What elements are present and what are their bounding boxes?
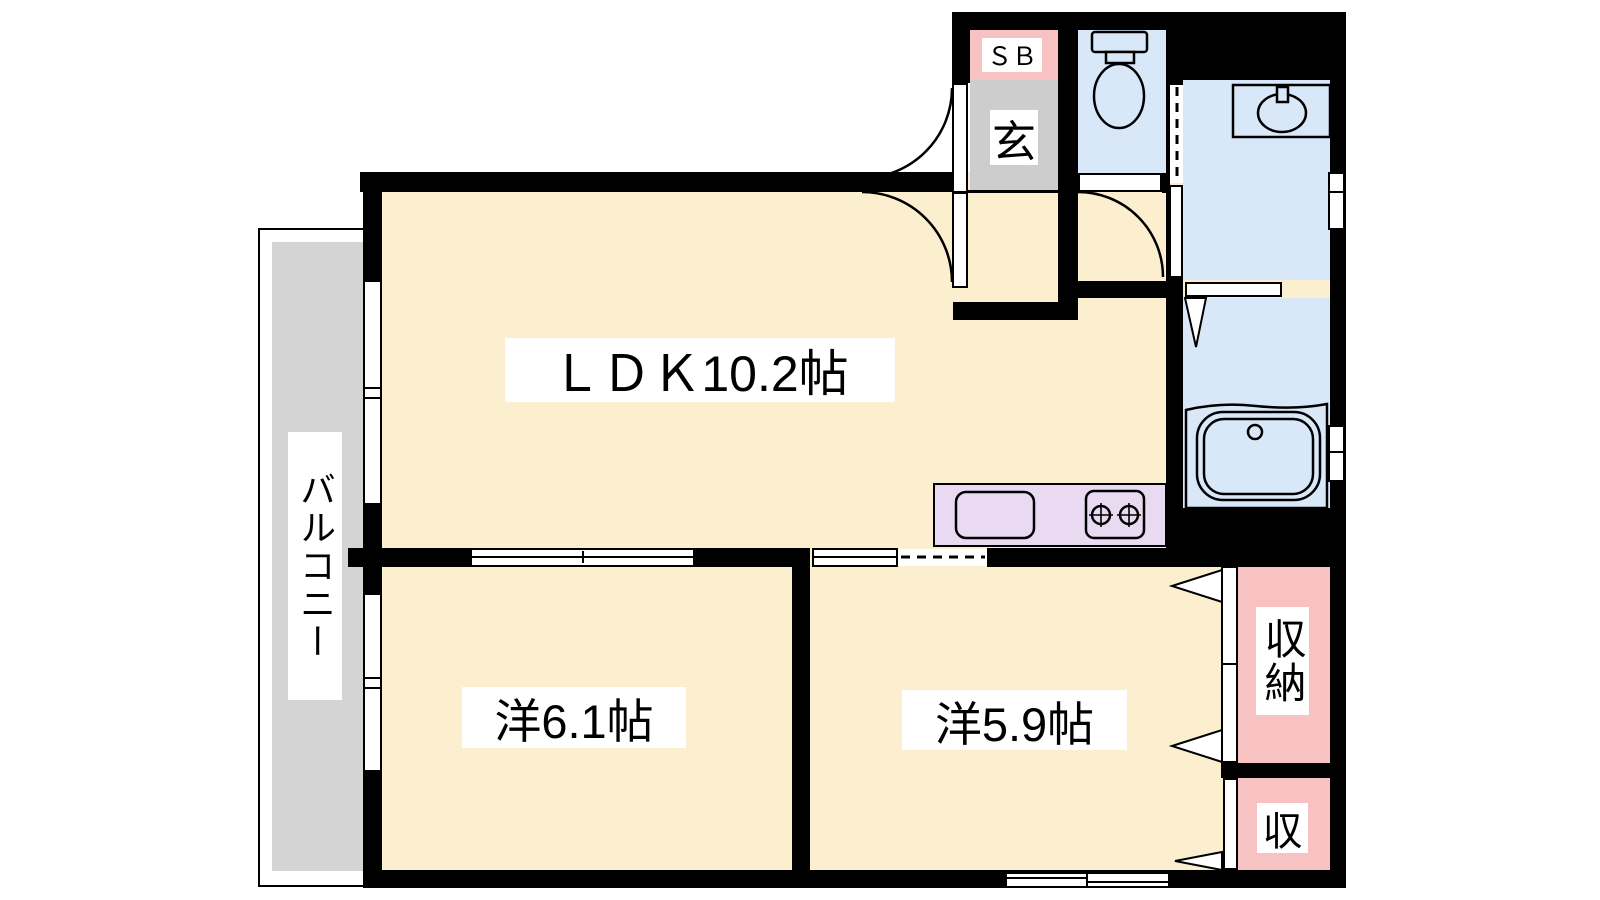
toilet-room — [1078, 30, 1166, 173]
window-bottom-bedroom2 — [1005, 872, 1170, 888]
washroom — [1183, 80, 1330, 280]
balcony-window-bedroom1 — [363, 593, 382, 772]
balcony-window-ldk — [363, 280, 382, 505]
sliding-door-ldk-bedroom1 — [470, 548, 695, 567]
kitchen-counter — [933, 483, 1167, 547]
floorplan-canvas: ＬＤＫ10.2帖 洋6.1帖 洋5.9帖 玄 ＳＢ バルコニー 収納 収 — [0, 0, 1600, 900]
closet-large-label: 収納 — [1256, 607, 1309, 715]
wall-entrance-toilet — [1058, 12, 1078, 298]
balcony-label: バルコニー — [288, 432, 342, 700]
shoe-box-label: ＳＢ — [982, 38, 1042, 72]
washroom-door — [1169, 185, 1183, 278]
sliding-door-bedroom2-open — [898, 549, 987, 566]
wall-above-washroom — [1166, 12, 1330, 80]
bedroom2-label: 洋5.9帖 — [902, 690, 1127, 750]
closet-small-label: 収 — [1257, 803, 1308, 853]
bedroom1-label: 洋6.1帖 — [462, 687, 686, 748]
bathroom — [1183, 298, 1330, 508]
ldk-label: ＬＤＫ10.2帖 — [505, 338, 895, 402]
ldk-door-leaf — [952, 192, 968, 288]
closet-large-door — [1221, 566, 1238, 763]
entrance-label: 玄 — [990, 110, 1038, 165]
bathroom-door-opening — [1185, 282, 1282, 297]
window-bathroom-right — [1328, 425, 1345, 482]
entrance-door-arc — [863, 88, 952, 178]
wall-ldk-top — [360, 172, 952, 192]
wall-hall-jog — [1058, 281, 1078, 320]
wall-mid-center — [695, 548, 792, 567]
wall-bedroom-divider — [792, 548, 810, 872]
wall-below-bath — [1183, 508, 1346, 566]
closet-small-door — [1223, 778, 1238, 870]
wall-hall-right — [1166, 278, 1183, 567]
entrance-door-leaf — [952, 83, 968, 193]
toilet-door — [1078, 173, 1162, 192]
wall-closet-divider — [1221, 763, 1346, 778]
wall-left-upper — [363, 172, 382, 280]
sliding-door-bedroom2-panel — [812, 548, 898, 567]
wall-toilet-washroom-upper — [1166, 12, 1183, 85]
wall-left-lower — [363, 772, 382, 870]
entrance-step-line — [968, 190, 1058, 193]
washroom-opening — [1170, 85, 1183, 183]
window-washroom-right — [1328, 172, 1345, 230]
wall-mid-left — [348, 548, 470, 567]
wall-bottom — [363, 870, 1346, 888]
